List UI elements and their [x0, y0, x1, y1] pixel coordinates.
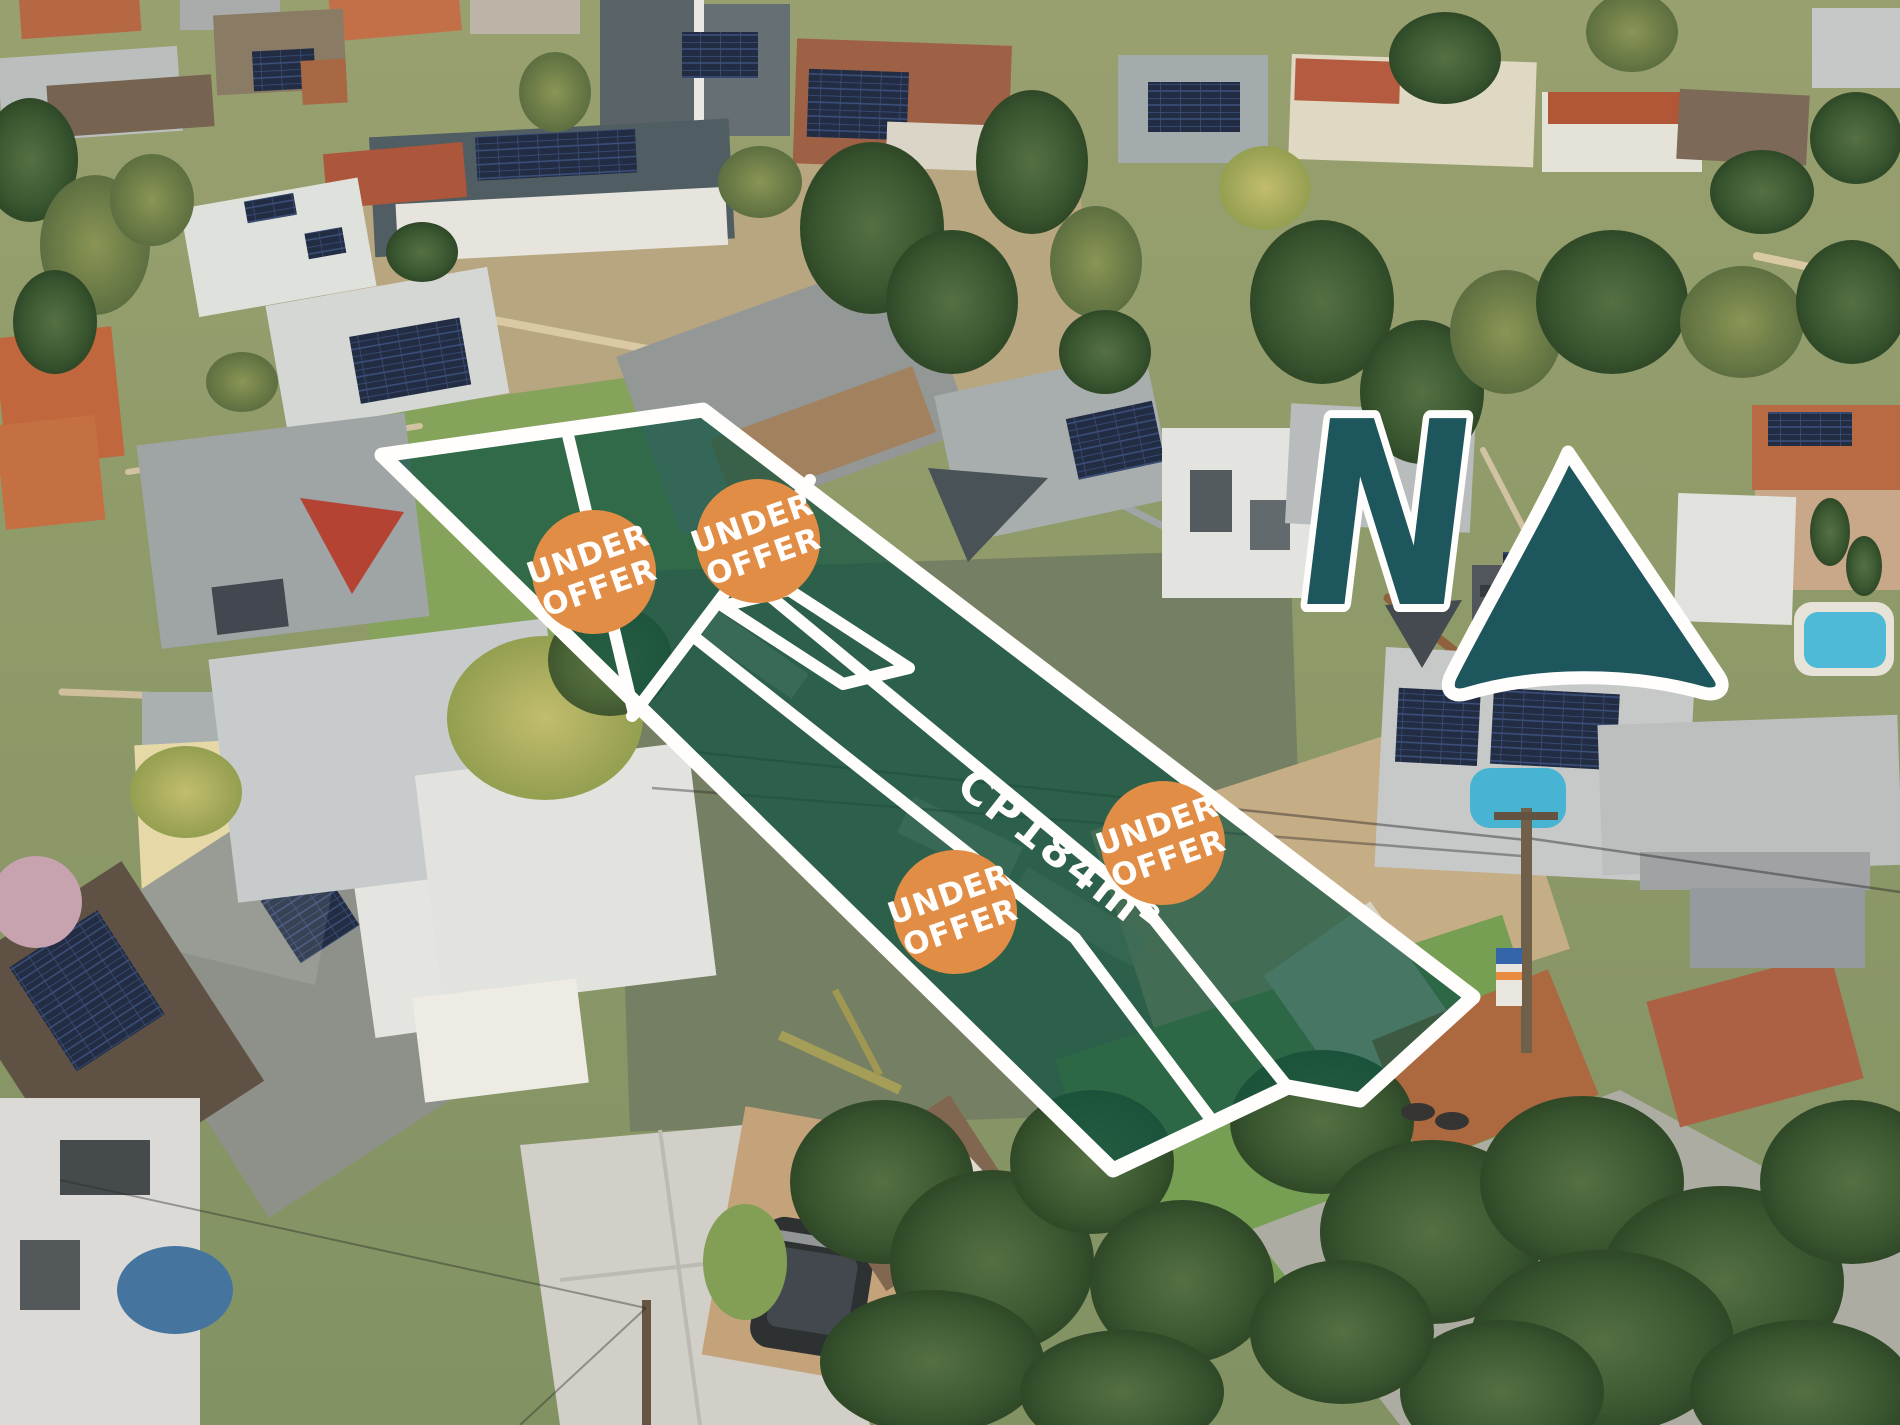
screenshot-root: CP 184m² UNDER OFFER UNDER OFFER UNDER O… [0, 0, 1900, 1425]
aerial-photo: CP 184m² UNDER OFFER UNDER OFFER UNDER O… [0, 0, 1900, 1425]
light-tint [0, 0, 1900, 1425]
